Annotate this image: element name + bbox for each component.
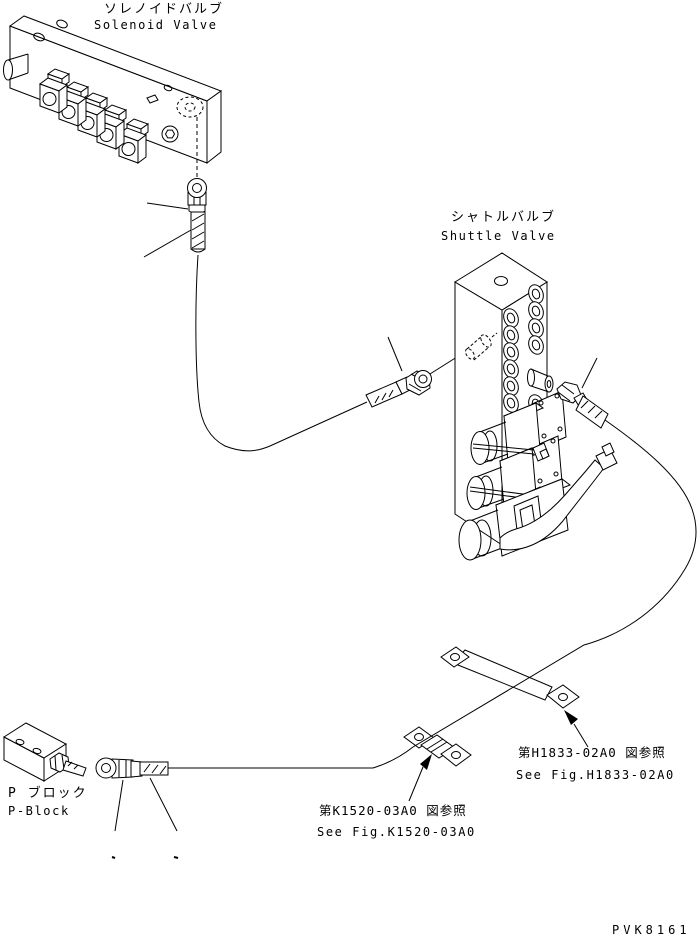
p-block-label-en: P-Block [8, 805, 70, 817]
shuttle-valve-label-en: Shuttle Valve [441, 230, 556, 242]
ref-arrow-h1833 [564, 710, 588, 747]
solenoid-valve-label-en: Solenoid Valve [94, 19, 218, 31]
solenoid-outlet-fitting [188, 179, 207, 253]
leader-line-hose-fitting-upper [388, 337, 402, 371]
solenoid-valve-drawing [4, 16, 222, 179]
p-block-label-jp: P ブロック [8, 787, 88, 800]
ref-k1520-label-jp: 第K1520-03A0 図参照 [319, 805, 467, 818]
ref-k1520-label-en: See Fig.K1520-03A0 [317, 826, 476, 838]
hose-solenoid-to-shuttle [196, 255, 367, 451]
parts-diagram-page: ソレノイドバルブ Solenoid Valve シャトルバルブ Shuttle … [0, 0, 700, 943]
hose-shuttle-to-pblock [168, 420, 696, 768]
clamp-bracket-long [441, 647, 579, 708]
ref-h1833-label-jp: 第H1833-02A0 図参照 [518, 747, 666, 760]
leader-lines-outlet-fitting [144, 203, 191, 257]
solenoid-valve-label-jp: ソレノイドバルブ [104, 3, 224, 16]
shuttle-valve-label-jp: シャトルバルブ [451, 211, 556, 224]
drawing-number: PVK8161 [612, 924, 691, 936]
hose-fitting-upper [366, 350, 468, 407]
ref-arrow-k1520 [409, 754, 432, 801]
ref-h1833-label-en: See Fig.H1833-02A0 [516, 769, 675, 781]
hose-fitting-pblock [96, 758, 168, 778]
p-block-drawing [4, 723, 86, 781]
leader-lines-pblock-fitting [112, 778, 178, 858]
diagram-canvas [0, 0, 700, 943]
leader-line-hose-fitting-right [582, 358, 597, 388]
